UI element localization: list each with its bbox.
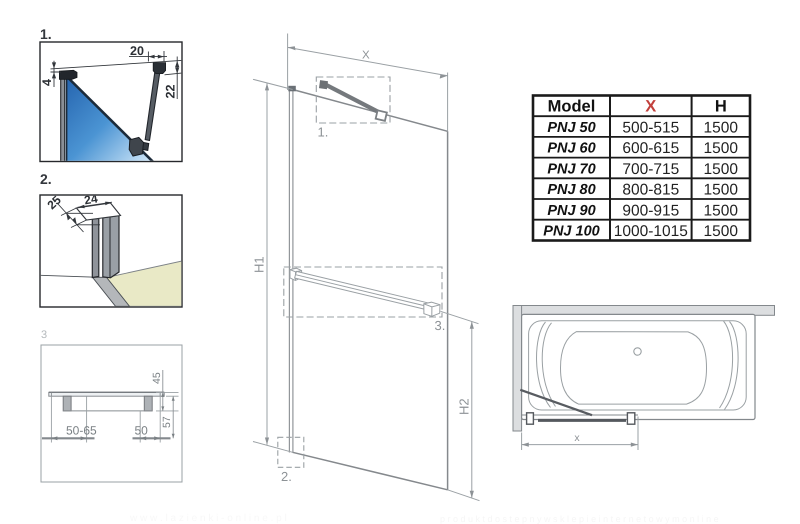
svg-text:H2: H2: [456, 398, 471, 415]
svg-text:1500: 1500: [704, 161, 739, 178]
svg-text:1500: 1500: [704, 223, 739, 240]
svg-text:1500: 1500: [704, 120, 739, 137]
svg-text:700-715: 700-715: [622, 161, 679, 178]
svg-text:PNJ 90: PNJ 90: [547, 203, 595, 219]
svg-text:3.: 3.: [435, 318, 446, 333]
svg-text:p r o d u k t d o s t e p n: p r o d u k t d o s t e p n y w s k l e …: [440, 514, 719, 524]
svg-text:2.: 2.: [281, 469, 292, 484]
svg-text:w w w . l a z i e n k i - o n: w w w . l a z i e n k i - o n l i n e . …: [129, 513, 287, 524]
svg-text:500-515: 500-515: [622, 120, 679, 137]
svg-text:1500: 1500: [704, 140, 739, 157]
svg-text:45: 45: [151, 372, 163, 384]
svg-text:PNJ 50: PNJ 50: [547, 120, 595, 136]
svg-text:1000-1015: 1000-1015: [614, 223, 688, 240]
svg-text:PNJ 70: PNJ 70: [547, 161, 595, 177]
svg-text:x: x: [574, 432, 580, 444]
svg-text:PNJ 100: PNJ 100: [543, 224, 599, 240]
svg-text:800-815: 800-815: [622, 182, 679, 199]
svg-text:H: H: [715, 98, 727, 116]
svg-text:X: X: [362, 50, 370, 62]
svg-text:50: 50: [135, 424, 149, 438]
svg-text:4: 4: [40, 79, 54, 86]
svg-text:1.: 1.: [40, 26, 52, 42]
svg-text:H1: H1: [252, 256, 267, 273]
svg-text:900-915: 900-915: [622, 202, 679, 219]
svg-text:1.: 1.: [318, 125, 329, 140]
svg-text:PNJ 60: PNJ 60: [547, 141, 595, 157]
svg-text:X: X: [645, 98, 656, 116]
svg-text:Model: Model: [548, 98, 596, 116]
svg-text:600-615: 600-615: [622, 140, 679, 157]
svg-text:20: 20: [130, 44, 144, 58]
svg-text:1500: 1500: [704, 182, 739, 199]
svg-text:57: 57: [161, 416, 173, 428]
svg-text:1500: 1500: [704, 202, 739, 219]
svg-text:PNJ 80: PNJ 80: [547, 182, 595, 198]
svg-text:2.: 2.: [40, 171, 52, 187]
svg-text:22: 22: [164, 85, 178, 99]
svg-text:50-65: 50-65: [66, 424, 97, 438]
svg-text:3: 3: [41, 329, 47, 341]
